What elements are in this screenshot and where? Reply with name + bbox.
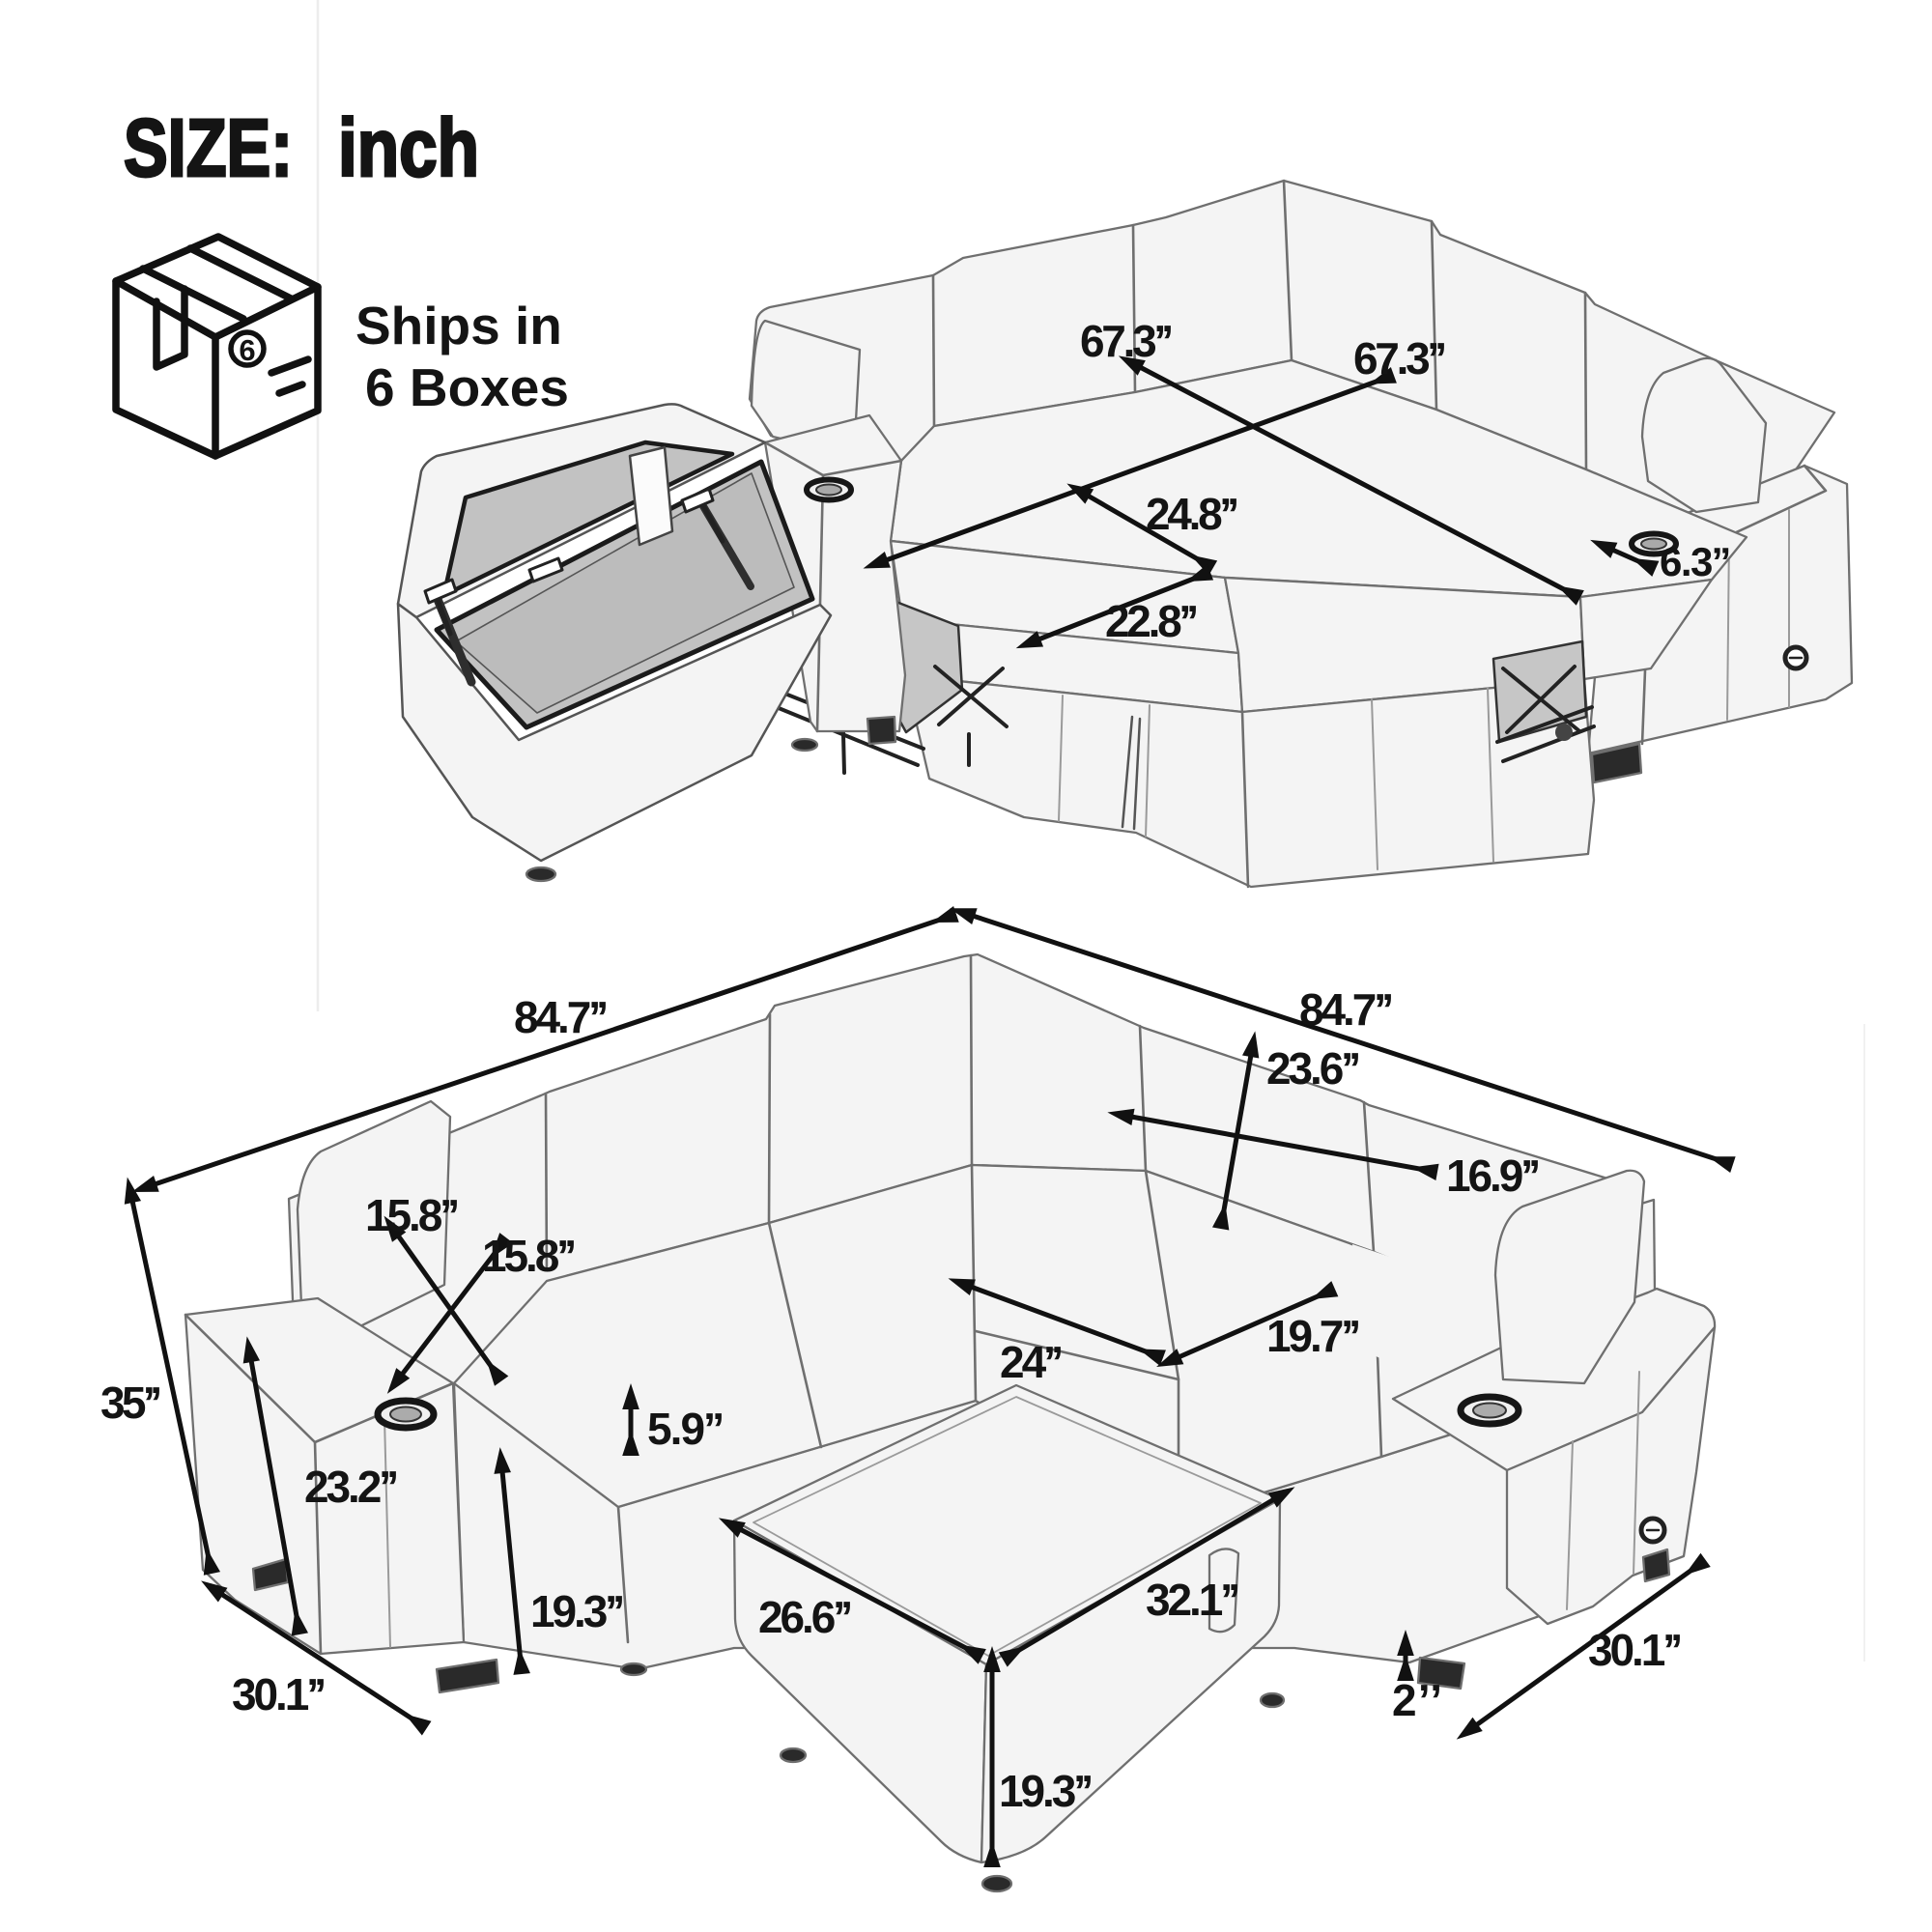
svg-text:2’’: 2’’ xyxy=(1392,1675,1442,1725)
svg-text:23.6’’: 23.6’’ xyxy=(1266,1043,1361,1094)
svg-text:67.3’’: 67.3’’ xyxy=(1353,333,1447,384)
svg-text:Ships in: Ships in xyxy=(355,296,562,355)
svg-text:35’’: 35’’ xyxy=(100,1378,162,1428)
svg-text:30.1’’: 30.1’’ xyxy=(1588,1625,1683,1675)
svg-text:23.2’’: 23.2’’ xyxy=(304,1462,399,1512)
svg-text:26.6’’: 26.6’’ xyxy=(758,1592,853,1642)
svg-text:15.8’’: 15.8’’ xyxy=(365,1190,460,1240)
svg-text:19.3’’: 19.3’’ xyxy=(530,1586,625,1636)
svg-text:32.1’’: 32.1’’ xyxy=(1146,1575,1240,1625)
svg-text:24.8’’: 24.8’’ xyxy=(1146,489,1239,539)
svg-text:15.8’’: 15.8’’ xyxy=(482,1231,577,1281)
svg-text:84.7’’: 84.7’’ xyxy=(1299,984,1394,1035)
svg-text:30.1’’: 30.1’’ xyxy=(232,1669,327,1719)
svg-text:6: 6 xyxy=(239,333,255,367)
svg-text:19.3’’: 19.3’’ xyxy=(999,1766,1094,1816)
svg-text:5.9’’: 5.9’’ xyxy=(647,1404,724,1454)
svg-text:inch: inch xyxy=(338,102,479,193)
svg-text:19.7’’: 19.7’’ xyxy=(1266,1311,1361,1361)
svg-text:SIZE:: SIZE: xyxy=(124,102,293,193)
svg-text:6 Boxes: 6 Boxes xyxy=(365,357,569,417)
svg-text:16.9’’: 16.9’’ xyxy=(1446,1151,1541,1201)
svg-text:24’’: 24’’ xyxy=(1000,1337,1064,1387)
svg-text:22.8’’: 22.8’’ xyxy=(1105,596,1199,646)
svg-text:6.3’’: 6.3’’ xyxy=(1660,539,1731,584)
svg-text:67.3’’: 67.3’’ xyxy=(1080,316,1174,366)
svg-text:84.7’’: 84.7’’ xyxy=(514,992,609,1042)
